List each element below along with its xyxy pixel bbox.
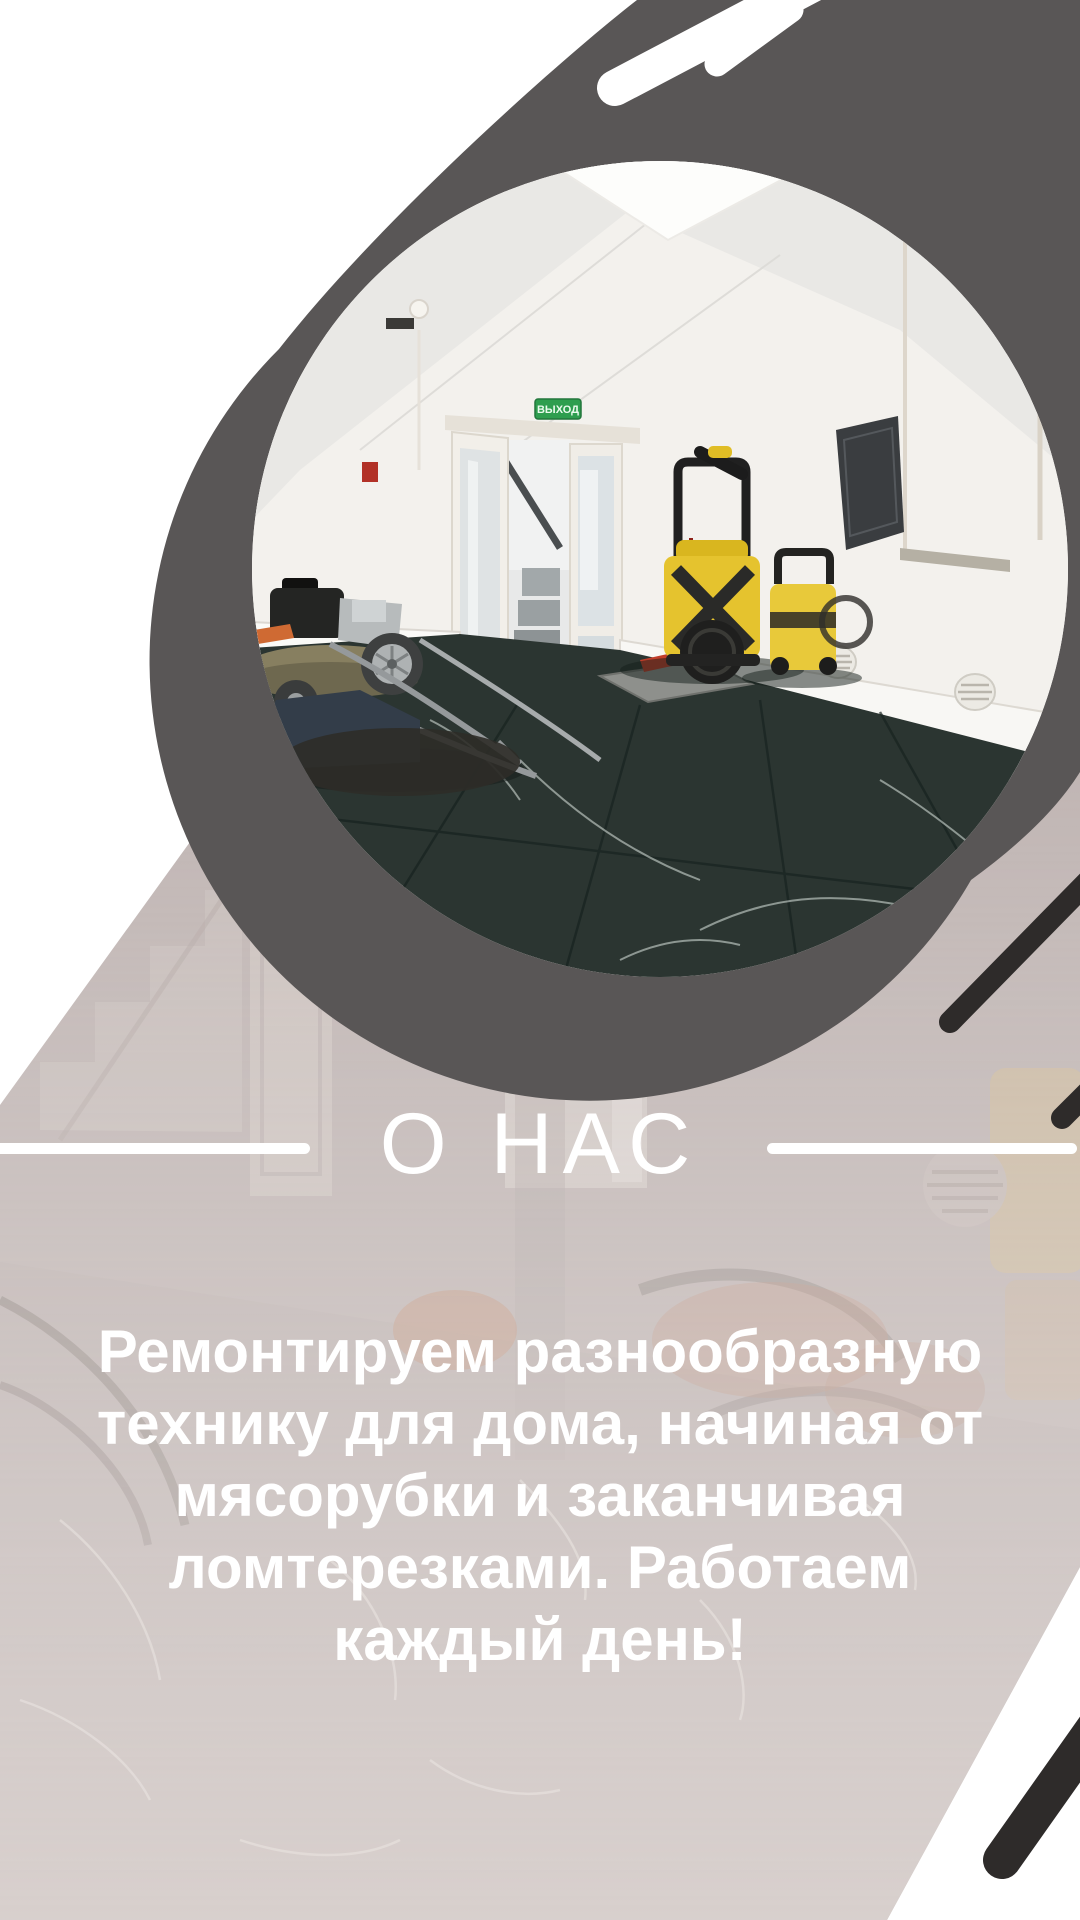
page-title: О НАС bbox=[0, 1094, 1080, 1194]
svg-text:ВЫХОД: ВЫХОД bbox=[537, 404, 579, 416]
about-line: ломтерезками. Работаем bbox=[0, 1532, 1080, 1604]
bottom-right-dark-stripe bbox=[1002, 1700, 1080, 1860]
exit-sign: ВЫХОД bbox=[535, 399, 581, 419]
story-page: ВЫХОД bbox=[0, 0, 1080, 1920]
about-paragraph: Ремонтируем разнообразную технику для до… bbox=[0, 1316, 1080, 1676]
about-line: технику для дома, начиная от bbox=[0, 1388, 1080, 1460]
about-line: мясорубки и заканчивая bbox=[0, 1460, 1080, 1532]
about-line: каждый день! bbox=[0, 1604, 1080, 1676]
about-line: Ремонтируем разнообразную bbox=[0, 1316, 1080, 1388]
